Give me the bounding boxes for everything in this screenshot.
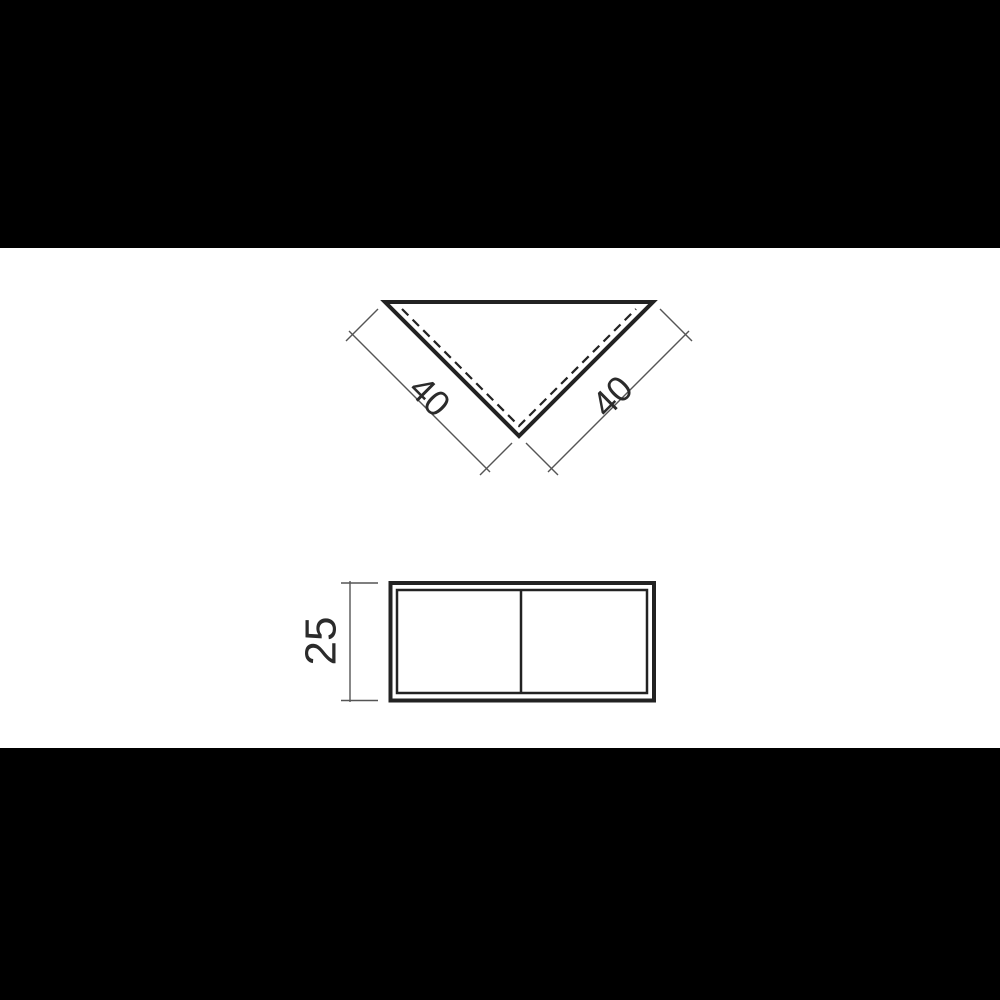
front-view-rectangle: 25 (296, 581, 654, 702)
rectangle-outline (391, 583, 655, 701)
right-dimension-label: 40 (583, 367, 640, 424)
left-dim-extension-bottom (480, 443, 512, 475)
right-dim-extension-top (660, 309, 692, 341)
screenshot-stage: 40 40 25 (0, 0, 1000, 1000)
left-dim-extension-top (346, 309, 378, 341)
technical-drawing-svg: 40 40 25 (0, 248, 1000, 748)
rectangle-dimension-lines (341, 581, 378, 702)
letterbox-top (0, 0, 1000, 248)
left-dimension-label: 40 (401, 367, 458, 424)
triangle-dimension-lines (346, 309, 692, 475)
right-dim-extension-bottom (526, 443, 558, 475)
top-view-triangle: 40 40 (346, 302, 692, 475)
drawing-canvas: 40 40 25 (0, 248, 1000, 748)
letterbox-bottom (0, 748, 1000, 1000)
height-dimension-label: 25 (296, 617, 345, 666)
